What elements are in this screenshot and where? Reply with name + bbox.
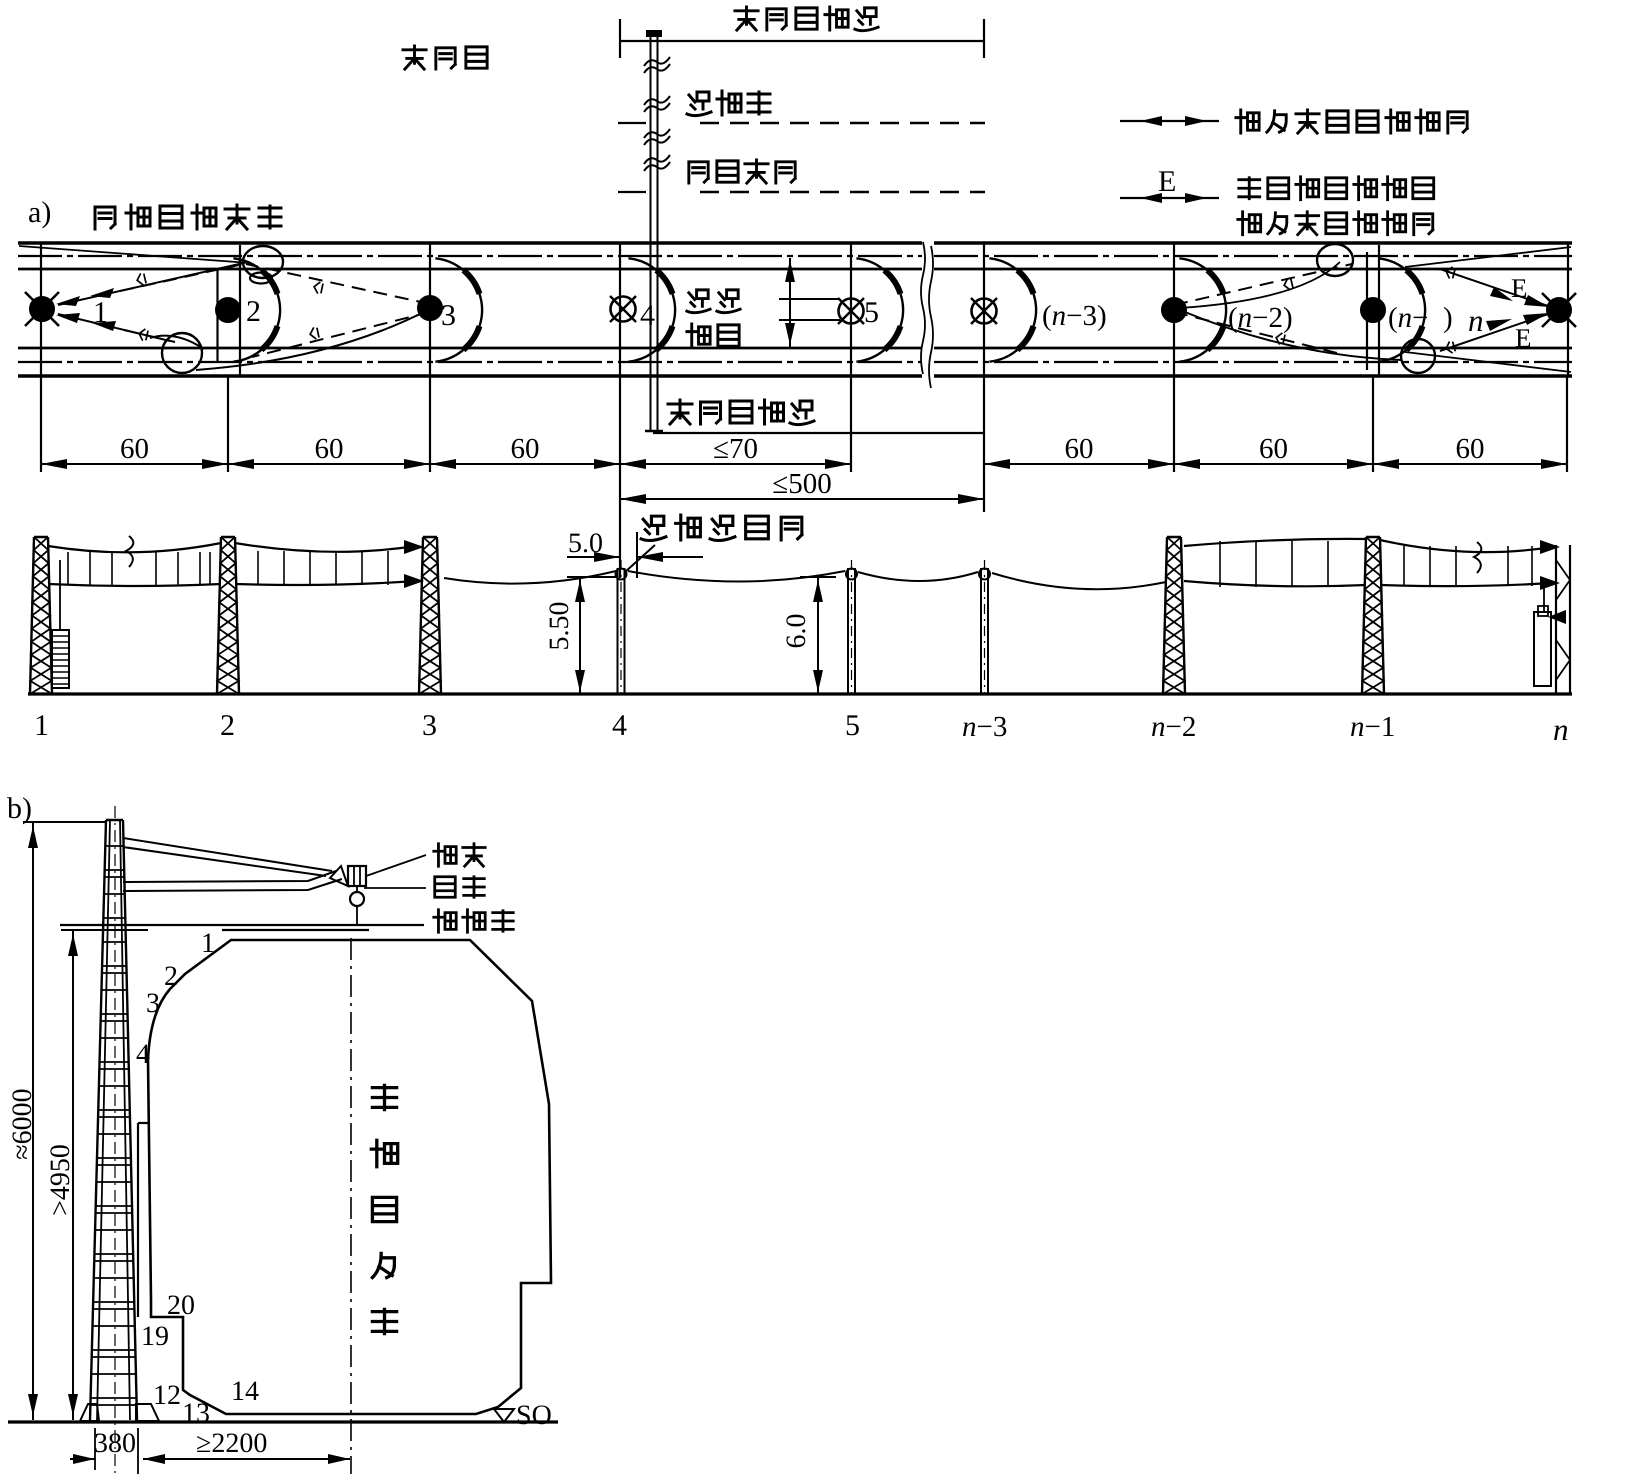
- svg-text:60: 60: [120, 433, 149, 465]
- svg-text:14: 14: [231, 1376, 259, 1407]
- svg-text:3: 3: [146, 988, 160, 1019]
- svg-text:2: 2: [246, 295, 261, 328]
- svg-text:13: 13: [182, 1398, 210, 1429]
- svg-text:b): b): [7, 792, 32, 825]
- svg-text:>4950: >4950: [45, 1144, 76, 1216]
- svg-text:19: 19: [141, 1321, 169, 1352]
- svg-text:12: 12: [153, 1380, 181, 1411]
- svg-text:≥2200: ≥2200: [196, 1428, 267, 1459]
- svg-text:60: 60: [1065, 433, 1094, 465]
- svg-text:1: 1: [34, 709, 49, 742]
- svg-text:1: 1: [93, 296, 108, 329]
- svg-text:≈6000: ≈6000: [7, 1088, 38, 1159]
- svg-text:6.0: 6.0: [781, 614, 812, 649]
- svg-text:5: 5: [845, 709, 860, 742]
- svg-text:60: 60: [1456, 433, 1485, 465]
- svg-text:60: 60: [511, 433, 540, 465]
- svg-text:4: 4: [136, 1039, 150, 1070]
- svg-text:5.50: 5.50: [544, 602, 575, 651]
- svg-text:4: 4: [612, 709, 627, 742]
- svg-text:4: 4: [640, 299, 655, 332]
- svg-text:(n− ): (n− ): [1388, 302, 1453, 334]
- svg-text:3: 3: [422, 709, 437, 742]
- svg-text:n: n: [1468, 303, 1484, 338]
- svg-text:380: 380: [94, 1428, 136, 1459]
- svg-text:2: 2: [220, 709, 235, 742]
- svg-text:(n−2): (n−2): [1228, 302, 1293, 334]
- svg-text:(n−3): (n−3): [1042, 300, 1107, 332]
- svg-text:2: 2: [164, 961, 178, 992]
- svg-text:n: n: [1553, 712, 1569, 747]
- svg-text:5: 5: [864, 296, 879, 329]
- svg-text:60: 60: [315, 433, 344, 465]
- svg-text:3: 3: [441, 299, 456, 332]
- svg-text:20: 20: [167, 1290, 195, 1321]
- svg-text:SO: SO: [516, 1400, 552, 1431]
- svg-text:n−1: n−1: [1350, 711, 1395, 743]
- svg-text:≤70: ≤70: [713, 433, 758, 465]
- svg-text:a): a): [28, 196, 51, 229]
- svg-text:E: E: [1158, 165, 1176, 198]
- svg-text:n−2: n−2: [1151, 711, 1196, 743]
- svg-text:≤500: ≤500: [772, 468, 831, 500]
- svg-text:1: 1: [201, 928, 215, 959]
- svg-text:60: 60: [1259, 433, 1288, 465]
- svg-text:n−3: n−3: [962, 711, 1007, 743]
- svg-text:E: E: [1515, 323, 1532, 353]
- svg-text:E: E: [1511, 273, 1528, 303]
